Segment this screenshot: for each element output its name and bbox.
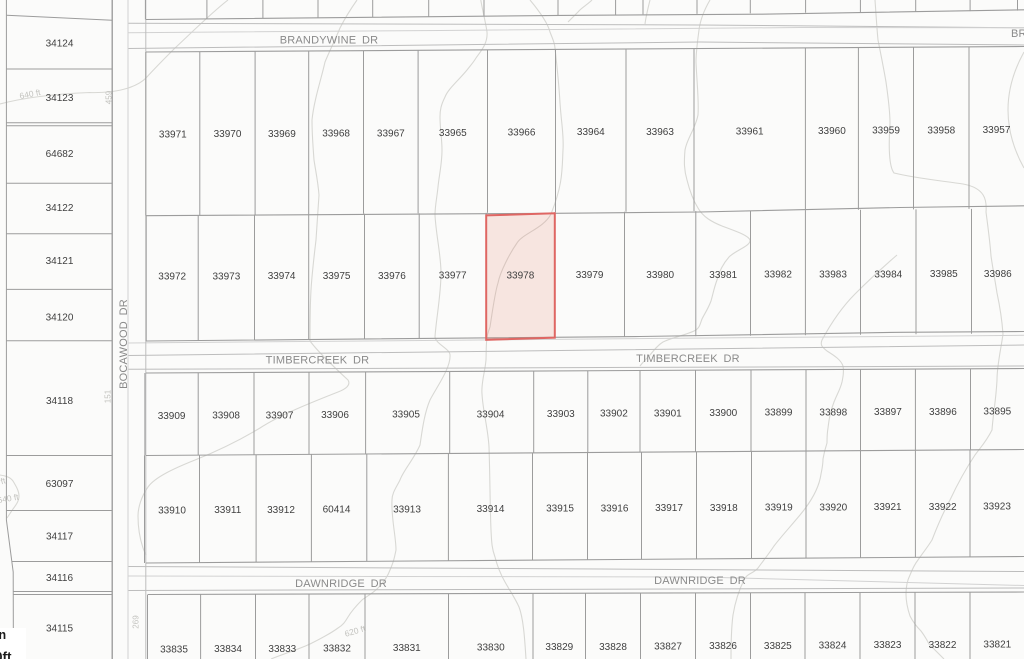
svg-text:33911: 33911 (214, 505, 242, 516)
svg-text:33834: 33834 (214, 644, 242, 655)
svg-text:64682: 64682 (46, 149, 74, 160)
svg-text:TIMBERCREEK DR: TIMBERCREEK DR (266, 355, 370, 367)
svg-text:33974: 33974 (268, 271, 296, 282)
svg-text:33899: 33899 (765, 408, 793, 419)
svg-text:33905: 33905 (392, 410, 420, 421)
svg-text:TIMBERCREEK DR: TIMBERCREEK DR (636, 353, 740, 365)
svg-text:34120: 34120 (46, 313, 74, 324)
svg-text:33985: 33985 (930, 269, 958, 280)
svg-text:33909: 33909 (158, 411, 186, 422)
svg-text:33826: 33826 (709, 641, 737, 652)
svg-text:459: 459 (105, 90, 114, 104)
svg-text:60414: 60414 (323, 505, 351, 516)
svg-text:34121: 34121 (46, 256, 74, 267)
svg-text:33918: 33918 (710, 503, 738, 514)
svg-text:33910: 33910 (158, 506, 186, 517)
svg-text:33968: 33968 (322, 129, 350, 140)
svg-text:33979: 33979 (576, 270, 604, 281)
svg-text:269: 269 (132, 615, 141, 629)
svg-text:33973: 33973 (212, 271, 240, 282)
svg-text:DAWNRIDGE DR: DAWNRIDGE DR (654, 575, 746, 587)
svg-text:33915: 33915 (546, 504, 574, 515)
svg-text:33961: 33961 (736, 126, 764, 137)
svg-text:DAWNRIDGE DR: DAWNRIDGE DR (295, 578, 387, 590)
svg-text:34115: 34115 (46, 624, 74, 635)
svg-text:BRANDYWINE DR: BRANDYWINE DR (280, 35, 379, 47)
svg-text:34124: 34124 (46, 39, 74, 50)
svg-text:33898: 33898 (819, 407, 847, 418)
svg-text:34116: 34116 (46, 573, 74, 584)
svg-text:33906: 33906 (321, 410, 349, 421)
svg-text:33897: 33897 (874, 407, 902, 418)
svg-text:34118: 34118 (46, 396, 74, 407)
svg-text:33831: 33831 (393, 643, 421, 654)
svg-text:33971: 33971 (159, 130, 187, 141)
svg-text:33923: 33923 (983, 502, 1011, 513)
svg-text:33822: 33822 (929, 640, 957, 651)
svg-text:33829: 33829 (545, 642, 573, 653)
svg-text:33921: 33921 (874, 502, 902, 513)
svg-text:33830: 33830 (477, 643, 505, 654)
svg-text:151: 151 (104, 389, 113, 403)
svg-text:33835: 33835 (160, 645, 188, 656)
svg-text:33821: 33821 (983, 640, 1011, 651)
svg-text:BOCAWOOD DR: BOCAWOOD DR (118, 299, 130, 389)
svg-text:33896: 33896 (929, 407, 957, 418)
svg-text:33908: 33908 (212, 411, 240, 422)
svg-text:33904: 33904 (477, 409, 505, 420)
svg-text:33916: 33916 (601, 503, 629, 514)
svg-text:34123: 34123 (46, 93, 74, 104)
svg-text:33901: 33901 (654, 408, 682, 419)
svg-text:33823: 33823 (874, 640, 902, 651)
svg-text:33922: 33922 (929, 502, 957, 513)
svg-text:33828: 33828 (599, 642, 627, 653)
svg-text:33958: 33958 (927, 125, 955, 136)
svg-text:33966: 33966 (508, 128, 536, 139)
svg-text:63097: 63097 (46, 479, 74, 490)
svg-text:34117: 34117 (46, 532, 74, 543)
svg-text:33960: 33960 (818, 126, 846, 137)
svg-text:33920: 33920 (819, 502, 847, 513)
svg-text:33957: 33957 (983, 125, 1011, 136)
svg-text:33977: 33977 (439, 271, 467, 282)
svg-text:33965: 33965 (439, 128, 467, 139)
svg-text:33827: 33827 (654, 642, 682, 653)
svg-text:33900: 33900 (709, 408, 737, 419)
svg-text:33967: 33967 (377, 128, 405, 139)
svg-text:33907: 33907 (266, 410, 294, 421)
svg-text:33986: 33986 (984, 269, 1012, 280)
svg-text:33902: 33902 (600, 409, 628, 420)
svg-text:BRA: BRA (1011, 28, 1024, 40)
svg-text:33963: 33963 (646, 127, 674, 138)
svg-text:33969: 33969 (268, 129, 296, 140)
svg-text:34122: 34122 (46, 203, 74, 214)
svg-text:33913: 33913 (393, 504, 421, 515)
svg-text:33919: 33919 (765, 503, 793, 514)
svg-text:0ft: 0ft (0, 650, 12, 659)
svg-text:33970: 33970 (214, 129, 242, 140)
svg-text:33903: 33903 (547, 409, 575, 420)
svg-text:33981: 33981 (709, 270, 737, 281)
svg-text:33982: 33982 (764, 270, 792, 281)
svg-text:33975: 33975 (323, 271, 351, 282)
svg-text:33825: 33825 (764, 641, 792, 652)
svg-text:33917: 33917 (655, 503, 683, 514)
svg-text:33824: 33824 (819, 641, 847, 652)
svg-text:33972: 33972 (158, 272, 186, 283)
svg-text:n: n (0, 628, 6, 642)
svg-text:33980: 33980 (646, 270, 674, 281)
svg-text:33832: 33832 (323, 644, 351, 655)
svg-text:33983: 33983 (819, 270, 847, 281)
svg-text:33833: 33833 (268, 644, 296, 655)
svg-text:33895: 33895 (983, 407, 1011, 418)
svg-text:33912: 33912 (267, 505, 295, 516)
svg-text:33976: 33976 (378, 271, 406, 282)
svg-text:33978: 33978 (506, 270, 534, 281)
svg-text:33914: 33914 (477, 504, 505, 515)
svg-text:33959: 33959 (872, 126, 900, 137)
svg-text:33984: 33984 (874, 269, 902, 280)
svg-text:33964: 33964 (577, 127, 605, 138)
